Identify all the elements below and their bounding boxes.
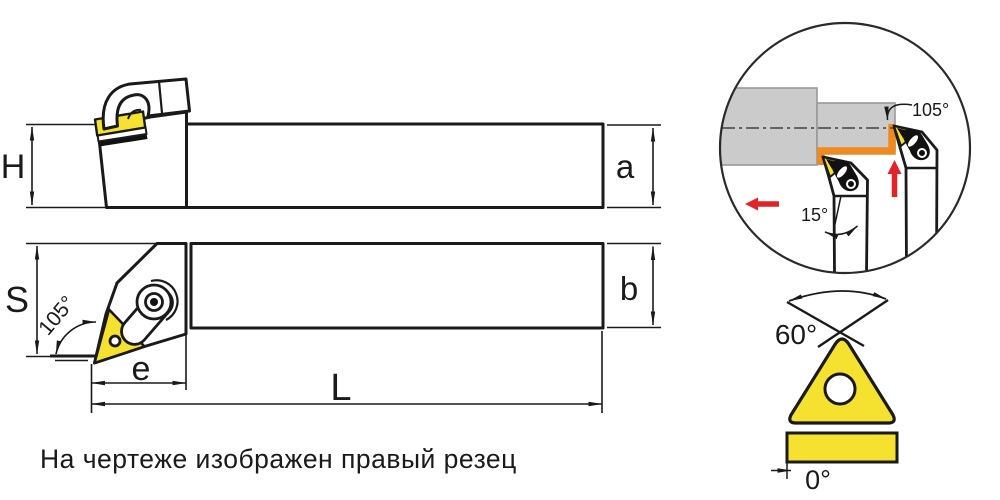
detail-left-clamp-screw xyxy=(847,180,855,188)
feed-arrow-left-head xyxy=(745,198,758,211)
workpiece-small-diameter xyxy=(817,103,895,151)
angle-label-15-detail: 15° xyxy=(801,205,828,225)
top-shank xyxy=(191,244,603,329)
insert-geometry-detail: 60° 0° xyxy=(771,291,897,495)
workpiece-large-diameter xyxy=(700,88,817,165)
side-view-drawing: H a xyxy=(1,79,661,208)
insert-hole xyxy=(825,374,855,404)
side-shank xyxy=(187,124,604,208)
dim-label-S: S xyxy=(5,279,29,320)
dim-label-e: e xyxy=(132,350,151,388)
angle-arc-60 xyxy=(789,291,886,301)
dim-label-b: b xyxy=(620,270,638,307)
dim-label-a: a xyxy=(616,148,635,185)
feed-arrow-up-head xyxy=(888,160,902,174)
top-screw-center xyxy=(150,298,158,306)
drawing-canvas: H a 105° S b xyxy=(0,0,1000,500)
tool-drawing-page: H a 105° S b xyxy=(0,0,1000,500)
top-view-drawing: 105° S b e L xyxy=(5,244,661,414)
angle-label-105-detail: 105° xyxy=(912,100,949,120)
dim-label-L: L xyxy=(330,367,351,409)
angle-label-105-top-view: 105° xyxy=(34,292,80,340)
top-insert-hole xyxy=(110,336,120,346)
angle-label-60: 60° xyxy=(775,319,817,350)
dim-label-H: H xyxy=(1,148,26,186)
note-text: На чертеже изображен правый резец xyxy=(40,444,517,474)
detail-right-clamp-screw xyxy=(918,149,926,157)
insert-side-view xyxy=(787,433,897,462)
angle-label-0: 0° xyxy=(805,465,831,495)
machining-detail-circle: 105° 15° xyxy=(700,23,970,274)
